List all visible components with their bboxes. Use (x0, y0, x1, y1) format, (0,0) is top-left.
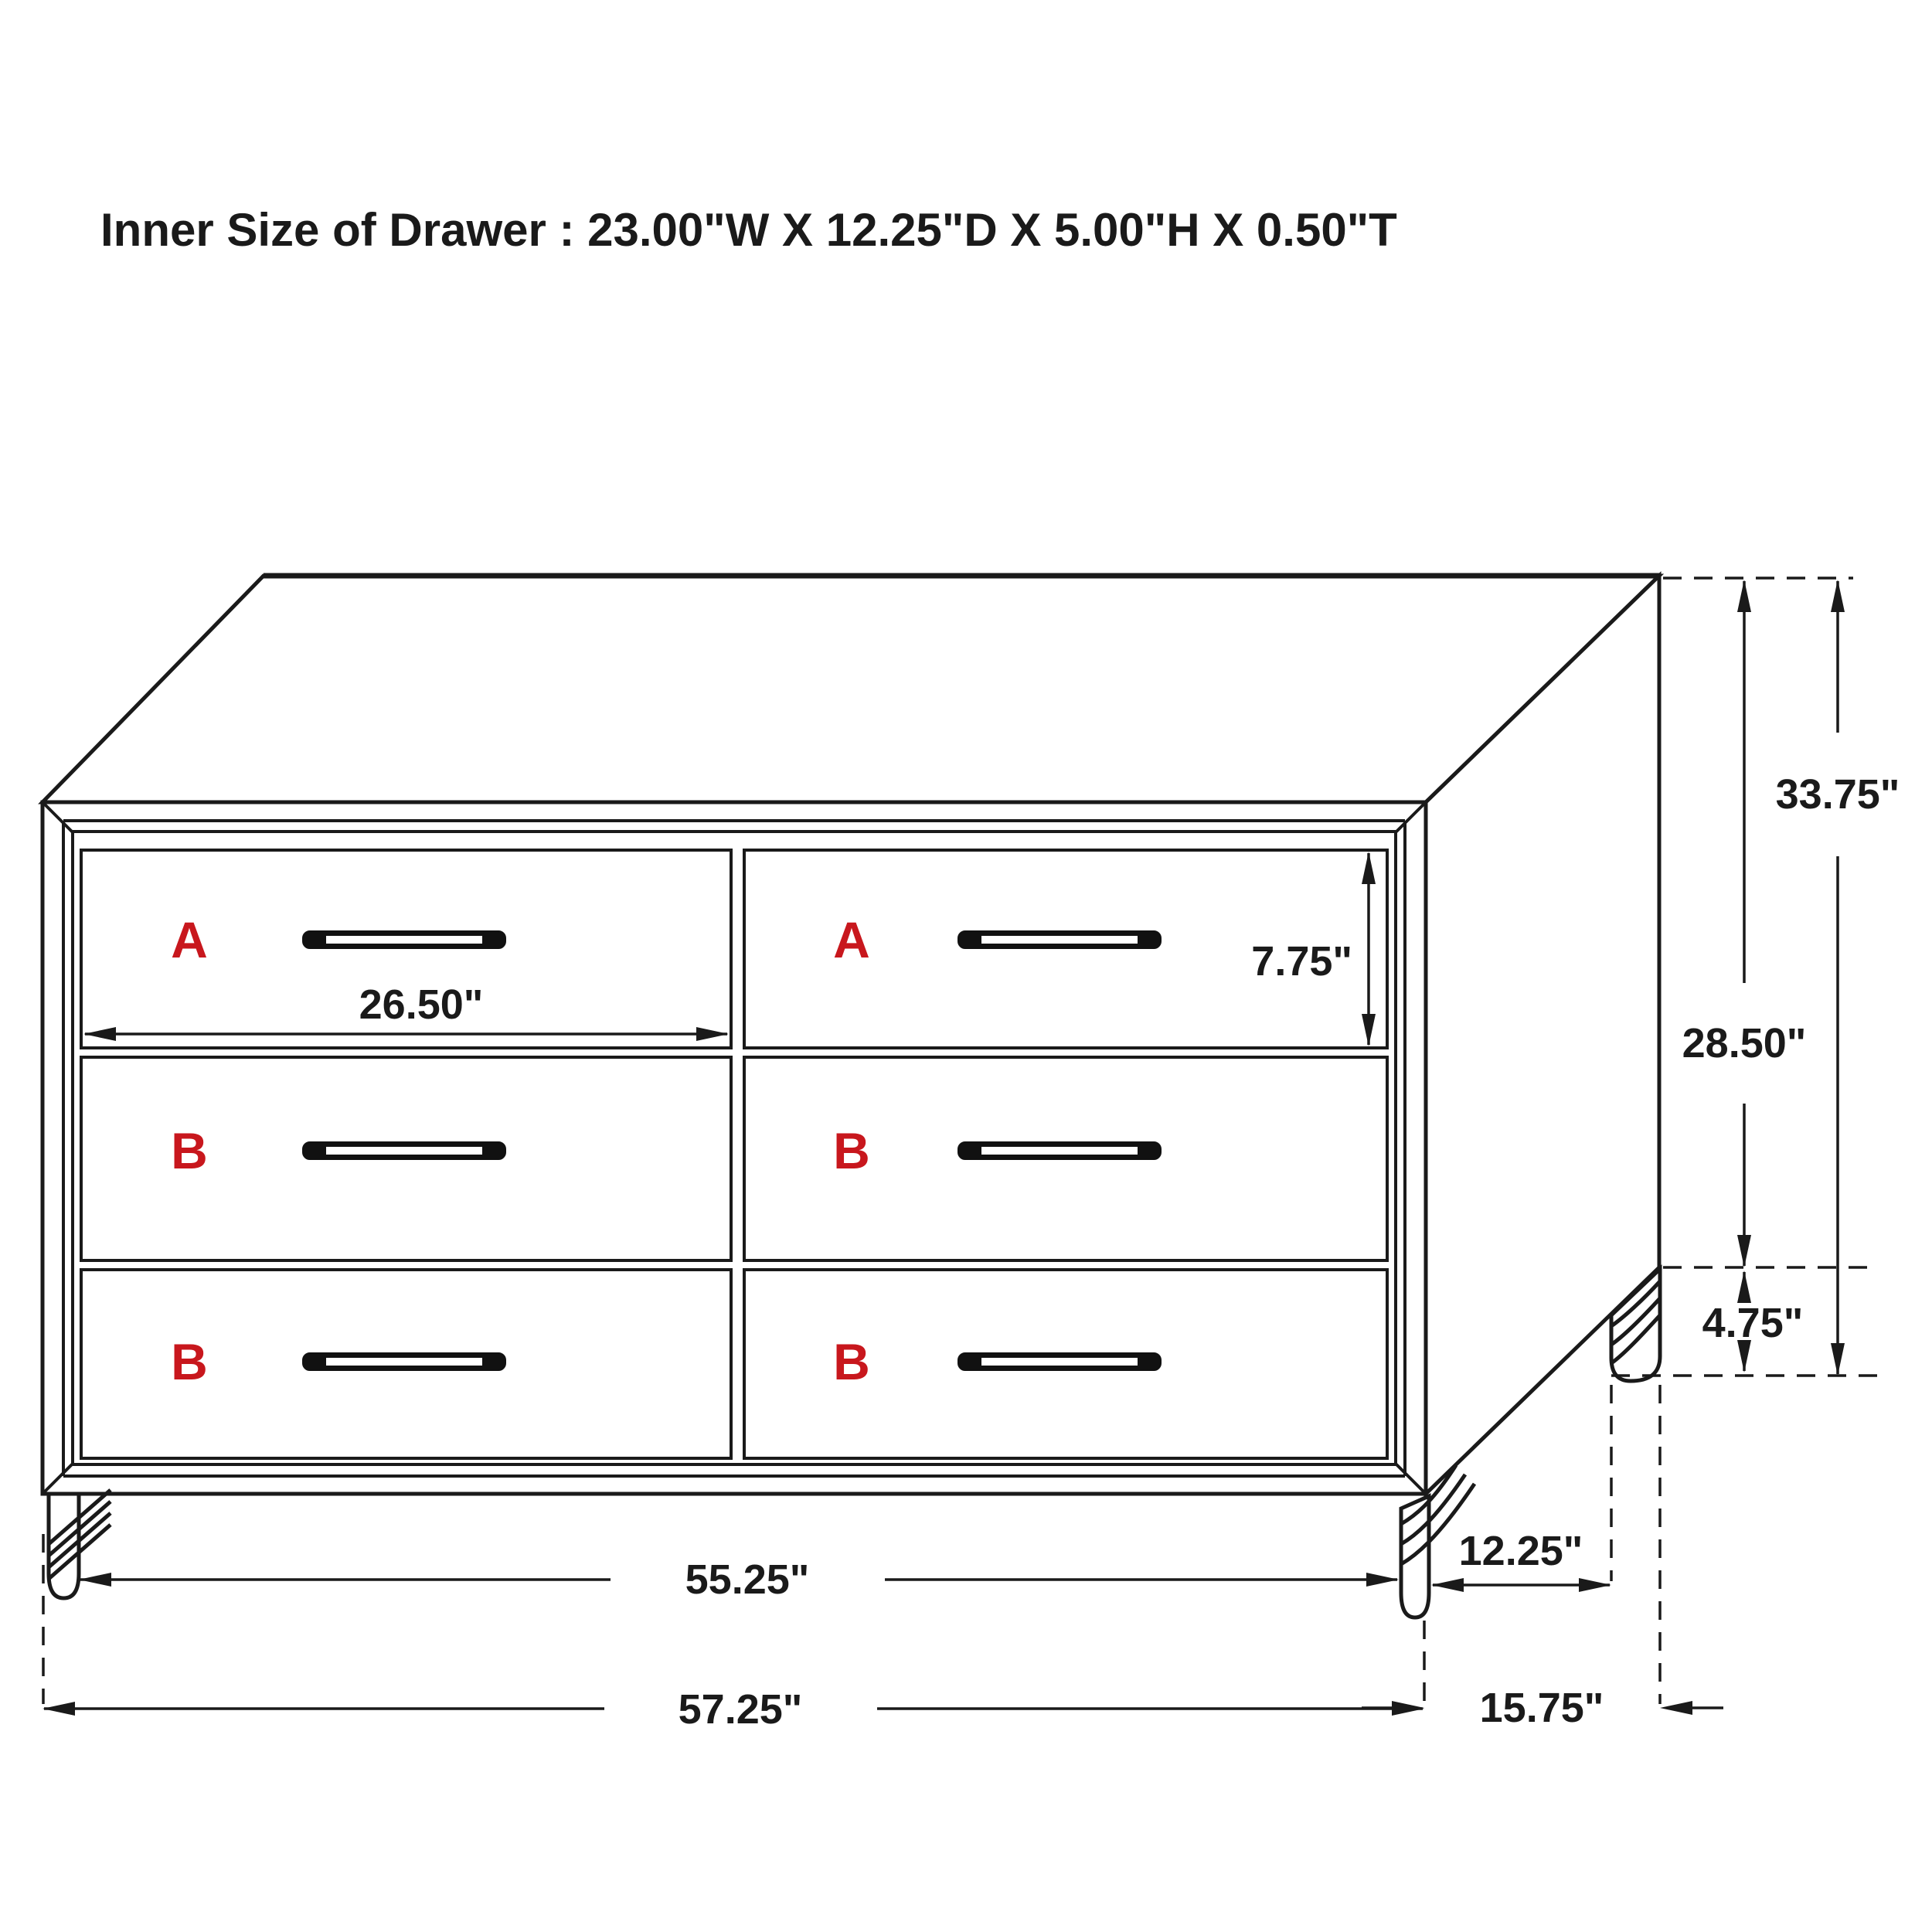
label-drawer-a-left: A (171, 911, 208, 968)
dim-label-drawer-height: 7.75" (1251, 938, 1352, 985)
handle-top-right (958, 931, 1161, 948)
handle-middle-left (303, 1142, 505, 1159)
dim-label-leg-height: 4.75" (1702, 1300, 1804, 1346)
label-drawer-b-middle-left: B (171, 1122, 208, 1179)
dim-label-overall-width: 57.25" (679, 1686, 803, 1733)
label-drawer-a-right: A (833, 911, 870, 968)
handle-top-left (303, 931, 505, 948)
dim-label-side-leg-span: 12.25" (1459, 1528, 1583, 1574)
top-face (43, 576, 1659, 802)
diagram-title: Inner Size of Drawer : 23.00"W X 12.25"D… (100, 204, 1397, 256)
dresser-dimension-diagram: Inner Size of Drawer : 23.00"W X 12.25"D… (0, 0, 1932, 1932)
label-drawer-b-middle-right: B (833, 1122, 870, 1179)
dresser-drawing: A A B B B B (43, 576, 1660, 1617)
dim-label-body-height: 28.50" (1682, 1020, 1807, 1066)
label-drawer-b-bottom-right: B (833, 1333, 870, 1390)
dim-label-overall-height: 33.75" (1776, 771, 1900, 818)
handle-bottom-left (303, 1353, 505, 1370)
dim-label-drawer-width: 26.50" (359, 981, 484, 1028)
handle-bottom-right (958, 1353, 1161, 1370)
dim-label-front-leg-span: 55.25" (685, 1556, 810, 1603)
dim-label-overall-depth: 15.75" (1480, 1685, 1604, 1731)
label-drawer-b-bottom-left: B (171, 1333, 208, 1390)
handle-middle-right (958, 1142, 1161, 1159)
